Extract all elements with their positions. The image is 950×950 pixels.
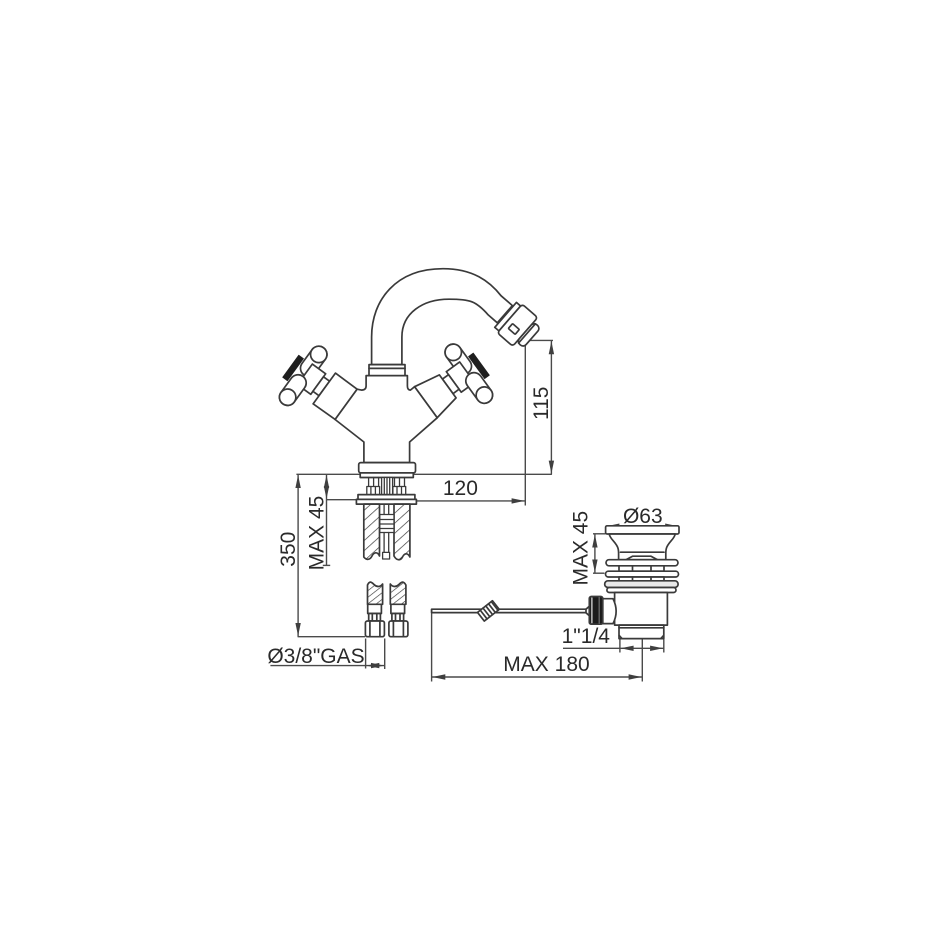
svg-text:Ø63: Ø63 xyxy=(623,505,663,528)
svg-text:MAX 180: MAX 180 xyxy=(503,653,589,676)
svg-text:120: 120 xyxy=(443,477,478,500)
svg-text:1"1/4: 1"1/4 xyxy=(562,625,611,648)
svg-text:MAX 45: MAX 45 xyxy=(306,496,329,571)
svg-text:MAX 45: MAX 45 xyxy=(570,511,593,586)
svg-text:350: 350 xyxy=(277,532,300,567)
svg-text:115: 115 xyxy=(530,387,553,420)
svg-text:Ø3/8"GAS: Ø3/8"GAS xyxy=(267,645,364,668)
